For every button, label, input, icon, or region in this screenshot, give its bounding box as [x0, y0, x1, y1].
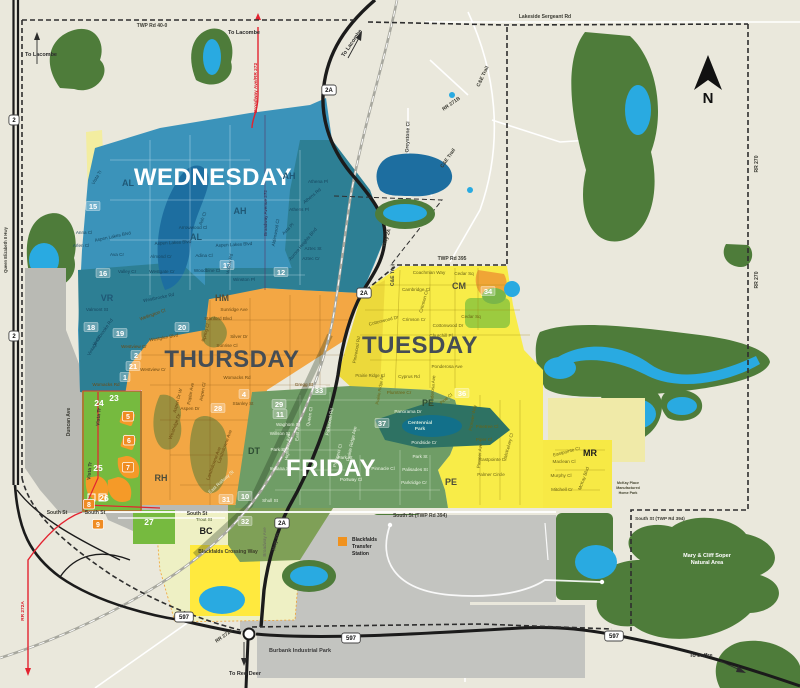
street-label-tuesday: Mitchell Cr [551, 487, 573, 492]
street-label-tuesday: Piper Cl [476, 437, 492, 442]
zone-number: 19 [116, 329, 124, 338]
boundary-road-label: TWP Rd 40-0 [137, 23, 168, 29]
zone-number: 8 [87, 502, 91, 509]
zone-number: 26 [99, 493, 109, 503]
street-label-thursday: Stanley St [233, 401, 255, 406]
zone-number: 7 [126, 465, 130, 472]
zone-number: 23 [109, 393, 119, 403]
area-code-label: MR [583, 448, 597, 458]
street-label-friday: Pondside Cr [411, 440, 437, 445]
boundary-road-label: Greystone Cl [404, 121, 411, 153]
street-label-wednesday: Arlen Cl [73, 243, 89, 248]
zone-number: 16 [99, 269, 107, 278]
transfer-station-icon [338, 537, 347, 546]
boundary-road-label: RR 270 [754, 155, 760, 172]
zone-number: 6 [127, 438, 131, 445]
street-label-wednesday: Athens Pl [289, 207, 309, 212]
street-label-wednesday: Ava Cr [110, 252, 124, 257]
zone-number: 18 [87, 323, 95, 332]
zone-number: 28 [214, 404, 222, 413]
area-code-label: RH [155, 473, 168, 483]
highway-shield-number: 2A [325, 88, 333, 94]
roadside-pond [375, 199, 435, 229]
area-code-label: PE [445, 477, 457, 487]
street-label-tuesday: Coachman Way [413, 270, 446, 275]
area-code-label: BC [200, 526, 213, 536]
street-label-bc: Blackfalds Crossing Way [198, 549, 258, 555]
street-label-wednesday: Aztec St [304, 246, 322, 251]
street-label-wednesday: Valley Cr [118, 269, 137, 274]
highway-shield-number: 597 [609, 634, 620, 640]
boundary-road-label: C&E Trail [390, 263, 397, 286]
highway-shield-number: 2A [278, 521, 286, 527]
street-label-thursday: Stanford Blvd [204, 316, 232, 321]
street-label-tuesday: Cottonwood Dr [433, 323, 464, 328]
street-label-wednesday: Aztec Cr [302, 256, 320, 261]
street-label-thursday: Womacks Rd [223, 375, 251, 380]
boundary-road-label: South St (TWP Rd 394) [635, 516, 685, 521]
street-label-wednesday: Valmont St [86, 307, 109, 312]
street-label-wednesday: Adina Cl [195, 253, 212, 258]
zone-number: 20 [178, 323, 186, 332]
zone-number: 27 [144, 517, 154, 527]
zone-number: 21 [129, 362, 137, 371]
zone-number: 11 [276, 410, 284, 419]
street-label-wednesday: Westgate Cr [149, 269, 175, 274]
zone-number: 31 [222, 495, 230, 504]
street-label-thursday: Womacks Rd [92, 382, 120, 387]
area-code-label: AH [234, 206, 247, 216]
street-label-wednesday: Woodbine Cl [194, 268, 220, 273]
street-label-friday: Panorama Dr [394, 409, 422, 414]
red-route-label: RR 272A [20, 601, 26, 621]
zone-number: 15 [89, 202, 97, 211]
area-code-label: AH [283, 171, 296, 181]
landmark-label: Natural Area [691, 560, 724, 566]
direction-label: To Red Deer [229, 671, 262, 677]
street-label-bc: Trout St [196, 517, 213, 522]
street-label-wednesday: Athena Pl [308, 179, 328, 184]
boundary-road-label: Duncan Ave [66, 408, 72, 437]
street-label-wednesday: Arrowwood Cl [179, 225, 208, 230]
area-code-label: PE [422, 398, 434, 408]
street-label-friday: Shull St [262, 498, 279, 503]
landmark-label: Park [415, 426, 426, 432]
map-canvas: 222A2A2A597597597 1215161718192211202842… [0, 0, 800, 688]
landmark-label: Centennial [408, 420, 433, 426]
street-label-wednesday: Winston Pl [233, 277, 255, 282]
street-label-wednesday: Almond Cr [150, 254, 172, 259]
landmark-label: Manufactured [616, 486, 640, 490]
street-label-tuesday: Cedar Sq [461, 314, 481, 319]
landmark-label: Station [352, 551, 369, 557]
area-code-label: AL [122, 178, 134, 188]
day-zone-label: TUESDAY [362, 332, 478, 359]
zone-number: 25 [93, 463, 103, 473]
street-label-tuesday: Crimson Cr [402, 317, 426, 322]
street-label-wednesday: Broadway Avenue 272 [263, 190, 268, 236]
street-label-thursday: Westview Cr [140, 367, 166, 372]
zone-number: 32 [241, 517, 249, 526]
boundary-road-label: TWP Rd 395 [438, 256, 467, 262]
collection-zone-map: 222A2A2A597597597 1215161718192211202842… [0, 0, 800, 688]
street-label-tuesday: Palmer Circle [477, 472, 505, 477]
zone-number: 36 [458, 389, 466, 398]
street-label-friday: Palisades St [402, 467, 428, 472]
area-code-label: DT [248, 446, 260, 456]
street-label-tuesday: Pinetree Cl [476, 424, 499, 429]
day-zone-label: THURSDAY [164, 346, 299, 373]
street-label-friday: Park St [412, 454, 428, 459]
area-code-label: CM [452, 281, 466, 291]
landmark-label: Home Park [619, 491, 638, 495]
zone-number: 10 [241, 492, 249, 501]
landmark-label: McKay Place [617, 481, 639, 485]
street-label-tuesday: Maclean Cl [553, 459, 576, 464]
direction-label: To Lacombe [25, 52, 57, 58]
boundary-road-label: South St (TWP Rd 394) [393, 513, 447, 519]
highway-shield-number: 597 [179, 615, 190, 621]
zone-number: 24 [94, 398, 104, 408]
street-label-thursday: Sunridge Ave [220, 307, 248, 312]
street-label-tuesday: Ponderosa Ave [431, 364, 463, 369]
street-label-wednesday: Anna Cl [76, 230, 92, 235]
boundary-road-label: South St [85, 510, 106, 516]
red-route-label: Broadway Ave/RR 272 [253, 63, 259, 114]
landmark-label: Transfer [352, 544, 372, 550]
boundary-road-label: RR 270 [754, 271, 760, 288]
landmark-label: Blackfalds [352, 537, 377, 543]
zone-number: 9 [96, 522, 100, 529]
day-zone-label: FRIDAY [286, 455, 376, 482]
boundary-road-label: South St [47, 510, 68, 516]
landmark-label: Mary & Cliff Soper [683, 553, 732, 559]
street-label-friday: Parkridge Cr [401, 480, 427, 485]
zone-number: 34 [484, 287, 493, 296]
zone-number: 12 [277, 268, 285, 277]
day-zone-label: WEDNESDAY [134, 164, 292, 191]
area-code-label: HM [215, 293, 229, 303]
area-code-label: VR [101, 293, 114, 303]
zone-number: 29 [275, 400, 283, 409]
street-label-tuesday: Cyprus Rd [398, 374, 420, 379]
street-label-thursday: Gregg St [295, 382, 314, 387]
street-label-thursday: Silver Dr [230, 334, 248, 339]
direction-label: To Joffre [689, 653, 712, 659]
street-label-bc: Broadway Ave [262, 527, 267, 557]
street-label-tuesday: Murphy Cl [551, 473, 572, 478]
zone-number: 33 [315, 386, 323, 395]
direction-label: N [703, 90, 714, 107]
zone-number: 1 [123, 373, 127, 382]
boundary-road-label: Burbank Industrial Park [269, 648, 332, 654]
area-code-label: AL [190, 232, 202, 242]
zone-number: 5 [126, 414, 130, 421]
zone-number: 37 [378, 419, 386, 428]
street-label-thursday: Westview Cr [121, 344, 147, 349]
zone-number: 2 [134, 351, 138, 360]
highway-shield-number: 597 [346, 636, 357, 642]
street-label-tuesday: Plumtree Cr [387, 390, 412, 395]
boundary-road-label: Queen Elizabeth II Hwy [3, 226, 8, 273]
direction-label: To Lacombe [228, 30, 260, 36]
highway-shield-number: 2A [360, 291, 368, 297]
street-label-thursday: Aspen Dr [180, 406, 200, 411]
boundary-road-label: Lakeside Sergeant Rd [519, 14, 571, 20]
street-label-tuesday: Cedar Sq [454, 271, 474, 276]
